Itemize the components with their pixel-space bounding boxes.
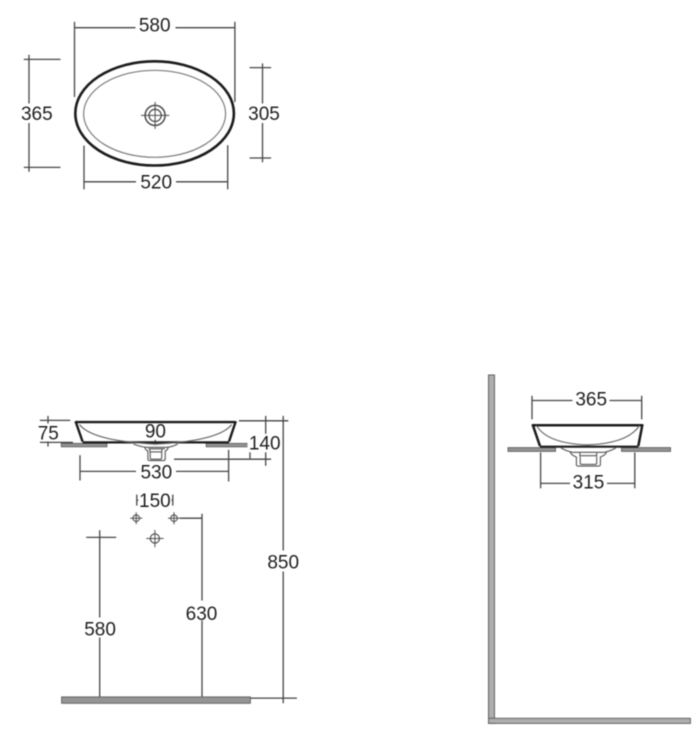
svg-text:75: 75 <box>38 423 59 444</box>
svg-text:365: 365 <box>575 390 607 411</box>
svg-text:150: 150 <box>139 491 171 512</box>
svg-text:520: 520 <box>140 173 172 194</box>
svg-text:580: 580 <box>84 619 116 640</box>
svg-text:365: 365 <box>21 104 53 125</box>
svg-text:90: 90 <box>145 422 166 443</box>
svg-text:850: 850 <box>267 553 299 574</box>
svg-text:530: 530 <box>140 463 172 484</box>
svg-text:305: 305 <box>248 104 280 125</box>
svg-text:140: 140 <box>249 434 281 455</box>
svg-text:630: 630 <box>186 604 218 625</box>
svg-text:580: 580 <box>139 16 171 37</box>
svg-text:315: 315 <box>573 473 605 494</box>
